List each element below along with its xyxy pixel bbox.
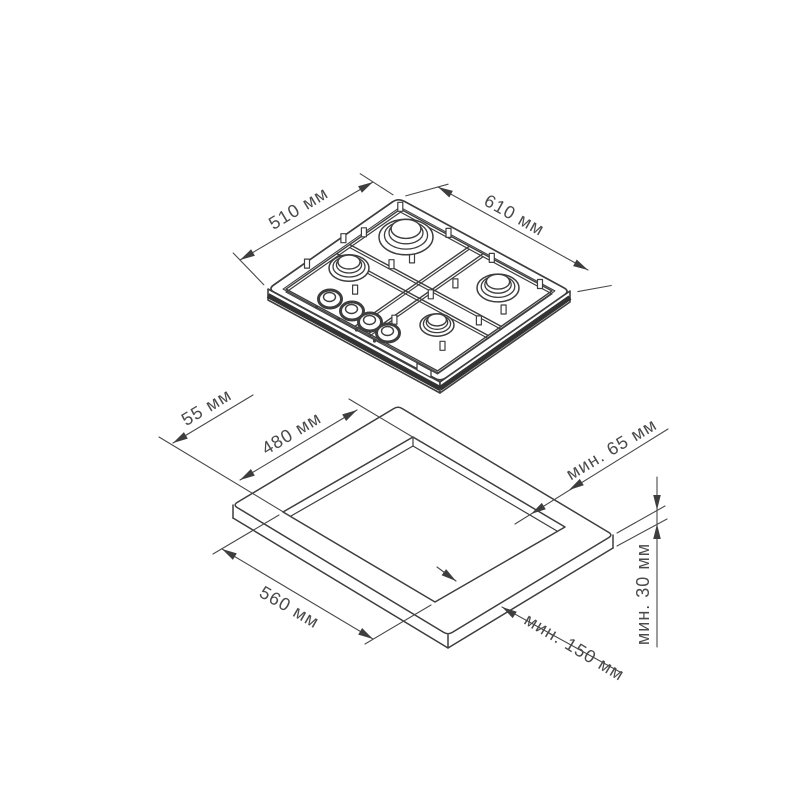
cutout-depth-label: 480 мм: [258, 408, 325, 459]
hob-isometric-view: 510 мм 610 мм: [233, 174, 611, 393]
hob-width-label: 610 мм: [481, 190, 548, 239]
control-knobs: [315, 290, 400, 343]
knob-1: [315, 290, 342, 309]
technical-drawing: 510 мм 610 мм: [0, 0, 800, 800]
worktop-thickness-label: мин. 30 мм: [633, 543, 653, 645]
worktop-cutout-view: 55 мм 480 мм 560 мм мин. 65 мм: [159, 384, 668, 684]
dimension-min-30: мин. 30 мм: [617, 477, 667, 647]
front-clearance-label: мин. 150 мм: [521, 609, 628, 684]
burner-small-front: [420, 314, 454, 336]
burner-large-rear: [379, 219, 433, 255]
burner-semi-left: [329, 255, 369, 281]
dimension-480: 480 мм: [240, 399, 421, 480]
dimension-min-65: мин. 65 мм: [515, 414, 668, 524]
rear-clearance-label: мин. 65 мм: [563, 414, 661, 484]
installation-diagram-page: 510 мм 610 мм: [0, 0, 800, 800]
hob-front-panel: [268, 289, 570, 393]
burner-semi-right: [477, 274, 519, 302]
